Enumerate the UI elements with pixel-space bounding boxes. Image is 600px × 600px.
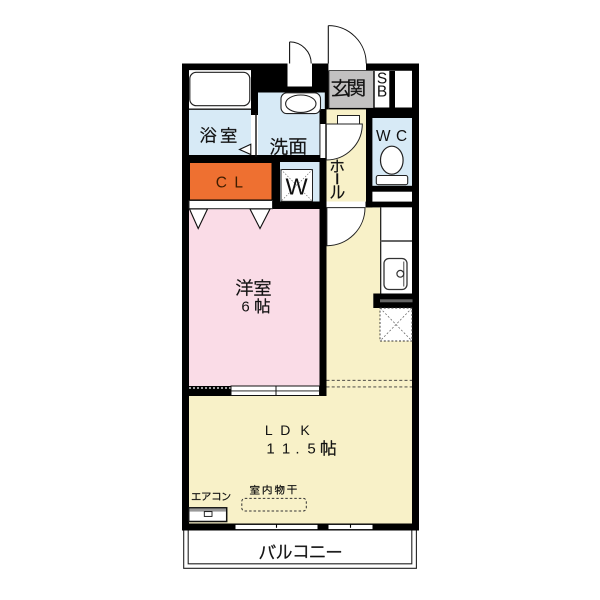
svg-text:B: B <box>377 84 387 101</box>
svg-text:5: 5 <box>307 441 315 458</box>
svg-text:W: W <box>376 128 391 145</box>
svg-text:K: K <box>300 422 310 438</box>
svg-text:1: 1 <box>282 441 290 458</box>
svg-text:L: L <box>234 175 243 192</box>
svg-text:D: D <box>280 422 290 438</box>
svg-text:C: C <box>396 128 407 145</box>
svg-text:W: W <box>286 173 309 199</box>
svg-text:.: . <box>295 441 299 458</box>
svg-text:6: 6 <box>241 298 249 315</box>
svg-text:C: C <box>216 175 227 192</box>
svg-text:L: L <box>265 422 273 438</box>
svg-text:1: 1 <box>266 441 274 458</box>
